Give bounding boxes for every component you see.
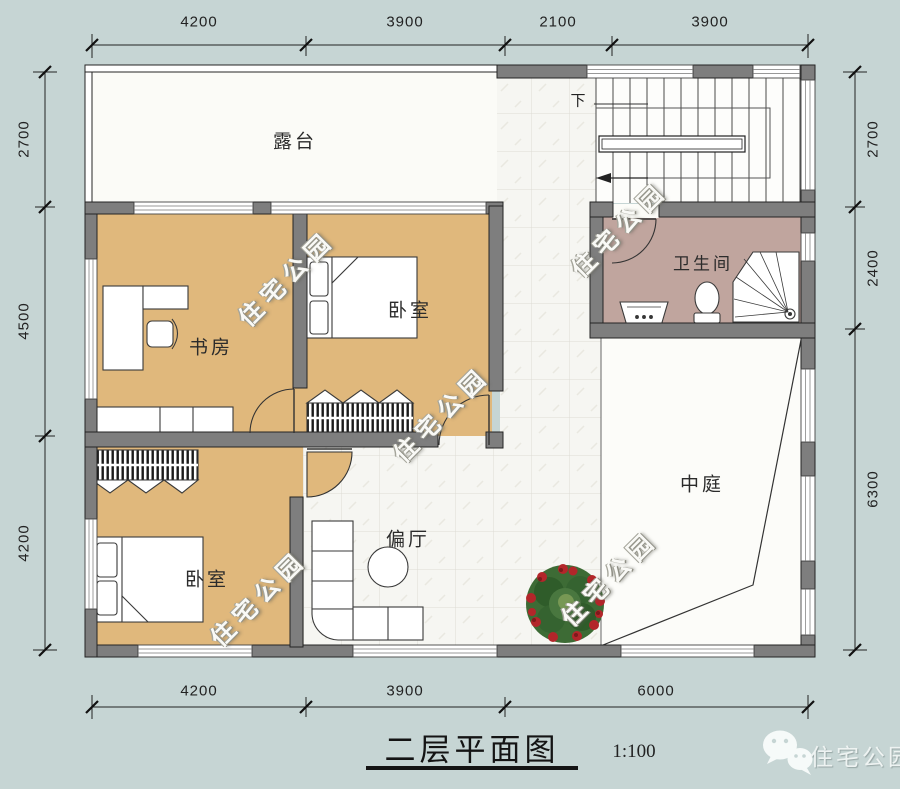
toilet [694,282,720,323]
floorplan-page: { "title": { "text": "二层平面图", "scale": "… [0,0,900,789]
terrace-parapet-west [85,65,92,208]
drawing-scale: 1:100 [612,741,655,763]
dim-top-3: 2100 [539,14,576,31]
brand-name: 住宅公园 [810,738,900,772]
dim-left-2: 4500 [16,302,33,339]
sink [620,302,668,326]
round-table [368,547,408,587]
dim-bottom-3: 6000 [637,683,674,700]
wardrobe-lower [92,450,198,493]
wechat-icon [759,728,817,776]
room-label-bedroom-middle: 卧室 [388,296,432,323]
terrace-parapet-north [85,65,505,72]
dim-top-1: 4200 [180,14,217,31]
dim-bottom-2: 3900 [386,683,423,700]
dim-right-1: 2700 [865,120,882,157]
dim-top-4: 3900 [691,14,728,31]
dim-left-1: 2700 [16,120,33,157]
floorplan-canvas: 露台 书房 卧室 卫生间 中庭 偏厅 卧室 下 4200 3900 2100 3… [0,0,900,789]
drawing-title: 二层平面图 [385,725,560,770]
stair-handrail [599,136,745,152]
room-label-bedroom-lower: 卧室 [185,565,229,592]
room-label-bathroom: 卫生间 [673,250,733,275]
dim-bottom-1: 4200 [180,683,217,700]
dim-top-2: 3900 [386,14,423,31]
room-label-study: 书房 [189,333,233,360]
stairs-down-label: 下 [570,90,585,111]
wardrobe-middle [307,390,413,433]
dim-right-2: 2400 [865,249,882,286]
room-label-side-hall: 偏厅 [386,525,430,552]
dim-right-3: 6300 [865,470,882,507]
room-label-atrium: 中庭 [680,470,724,497]
dim-left-3: 4200 [16,524,33,561]
room-label-terrace: 露台 [273,127,317,154]
title-underline [366,766,578,770]
